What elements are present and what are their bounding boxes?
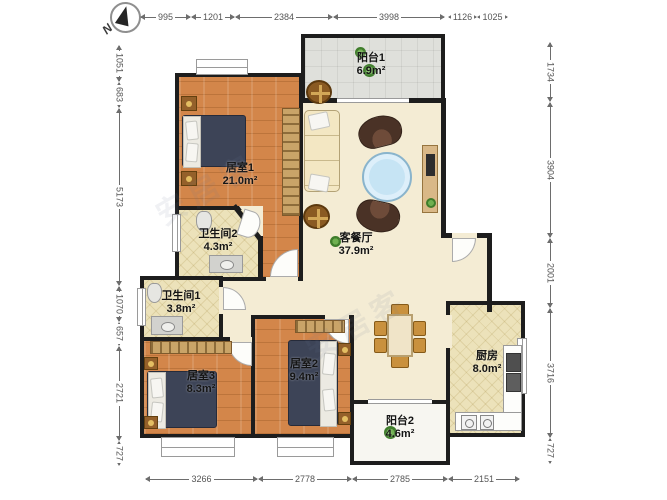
- room-name: 阳台1: [357, 52, 386, 65]
- nightstand: [181, 96, 197, 111]
- room-area: 8.0m²: [473, 363, 502, 376]
- wardrobe-bedroom2: [295, 320, 345, 333]
- room-area: 21.0m²: [223, 175, 258, 188]
- toilet: [147, 283, 162, 303]
- dim-right-3: 2001: [543, 238, 557, 308]
- dim-top-3: 2384: [235, 10, 333, 24]
- nightstand: [181, 171, 197, 186]
- dining-table: [387, 314, 413, 357]
- bedroom2-window: [277, 437, 334, 457]
- room-area: 8.3m²: [187, 383, 216, 396]
- room-area: 6.9m²: [357, 65, 386, 78]
- label-bathroom1: 卫生间1 3.8m²: [161, 290, 200, 316]
- wall-entry-right: [487, 233, 492, 312]
- dim-left-2: 683: [112, 82, 126, 108]
- coffee-table: [362, 152, 412, 202]
- balcony2-sliding-door: [368, 399, 432, 404]
- label-bathroom2: 卫生间2 4.3m²: [198, 228, 237, 254]
- room-name: 居室1: [223, 162, 258, 175]
- nightstand: [338, 412, 351, 425]
- room-name: 客餐厅: [339, 232, 374, 245]
- dim-left-1: 1051: [112, 45, 126, 82]
- room-name: 阳台2: [386, 415, 415, 428]
- bed-bedroom1: [182, 115, 246, 167]
- dim-bottom-1: 3266: [145, 472, 258, 486]
- bathroom2-window: [172, 214, 181, 252]
- room-name: 居室3: [187, 370, 216, 383]
- room-area: 4.3m²: [198, 241, 237, 254]
- dim-right-4: 3716: [543, 308, 557, 438]
- sink-vanity: [151, 316, 183, 335]
- sink-vanity: [209, 255, 243, 273]
- side-table: [303, 204, 330, 229]
- room-area: 3.8m²: [161, 303, 200, 316]
- nightstand: [338, 343, 351, 356]
- label-bedroom1: 居室1 21.0m²: [223, 162, 258, 188]
- dim-left-5: 657: [112, 322, 126, 346]
- dim-left-6: 2721: [112, 346, 126, 441]
- label-bedroom2: 居室2 9.4m²: [290, 358, 319, 384]
- wardrobe-bedroom3: [150, 341, 232, 354]
- dim-left-7: 727: [112, 441, 126, 466]
- dim-right-2: 3904: [543, 102, 557, 238]
- compass: N: [103, 0, 145, 40]
- dining-chair: [413, 338, 426, 353]
- dim-top-2: 1201: [191, 10, 235, 24]
- side-table: [306, 80, 332, 104]
- wardrobe-bedroom1: [282, 108, 300, 216]
- dim-bottom-2: 2778: [258, 472, 352, 486]
- dim-left-4: 1070: [112, 286, 126, 322]
- room-name: 居室2: [290, 358, 319, 371]
- dining-chair: [374, 321, 387, 336]
- kitchen-counter-bottom: [455, 412, 522, 431]
- dim-top-4: 3998: [333, 10, 445, 24]
- room-area: 9.4m²: [290, 371, 319, 384]
- room-name: 卫生间1: [161, 290, 200, 303]
- dim-right-1: 1734: [543, 42, 557, 102]
- room-name: 卫生间2: [198, 228, 237, 241]
- label-living-dining: 客餐厅 37.9m²: [339, 232, 374, 258]
- dim-top-6: 1025: [477, 10, 508, 24]
- dim-top-5: 1126: [448, 10, 477, 24]
- bathroom1-window: [137, 288, 146, 326]
- sofa: [304, 110, 340, 192]
- bedroom1-window: [196, 59, 248, 75]
- dining-chair: [413, 321, 426, 336]
- dim-right-5: 727: [543, 438, 557, 464]
- wall-living-right: [441, 98, 446, 238]
- floor-plan: 阳台1 6.9m² 居室1 21.0m² 卫生间2 4.3m² 卫生间1 3.8…: [0, 0, 667, 500]
- bedroom3-window: [161, 437, 235, 457]
- label-balcony2: 阳台2 4.6m²: [386, 415, 415, 441]
- kitchen-entry-gap: [445, 315, 452, 348]
- label-kitchen: 厨房 8.0m²: [473, 350, 502, 376]
- label-balcony1: 阳台1 6.9m²: [357, 52, 386, 78]
- dim-left-3: 5173: [112, 108, 126, 286]
- dining-chair: [374, 338, 387, 353]
- bedroom1-door-gap: [266, 277, 298, 281]
- dim-top-1: 995: [140, 10, 191, 24]
- dim-bottom-3: 2785: [352, 472, 448, 486]
- room-area: 4.6m²: [386, 428, 415, 441]
- label-bedroom3: 居室3 8.3m²: [187, 370, 216, 396]
- dim-bottom-4: 2151: [448, 472, 520, 486]
- room-name: 厨房: [473, 350, 502, 363]
- tv-cabinet: [422, 145, 438, 213]
- wall-bathroom2-right: [258, 236, 263, 281]
- balcony1-sliding-door: [337, 98, 409, 103]
- nightstand: [144, 357, 158, 370]
- room-area: 37.9m²: [339, 245, 374, 258]
- nightstand: [144, 416, 158, 429]
